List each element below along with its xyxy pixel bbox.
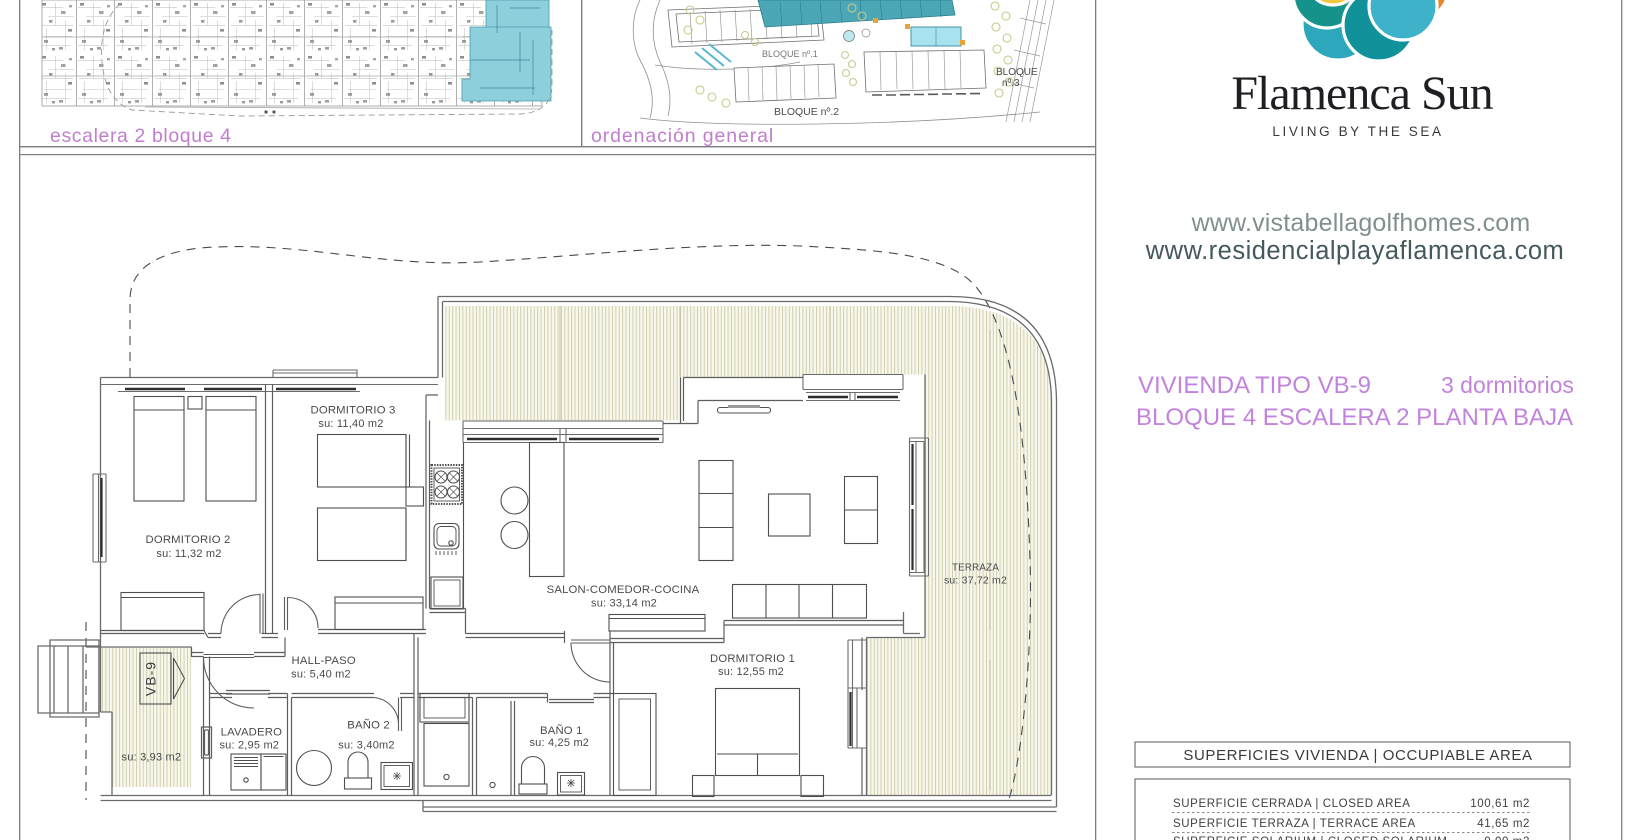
svg-text:SUPERFICIE TERRAZA | TERRA: SUPERFICIE TERRAZA | TERRACE AREA bbox=[1173, 818, 1416, 830]
svg-text:3 dormitorios: 3 dormitorios bbox=[1441, 372, 1574, 398]
svg-text:VIVIENDA TIPO VB-9: VIVIENDA TIPO VB-9 bbox=[1138, 372, 1371, 399]
svg-text:su: 3,93 m2: su: 3,93 m2 bbox=[122, 752, 182, 764]
svg-text:su: 4,25 m2: su: 4,25 m2 bbox=[529, 737, 589, 749]
svg-text:su: 3,40m2: su: 3,40m2 bbox=[338, 740, 394, 752]
svg-text:DORMITORIO 3: DORMITORIO 3 bbox=[310, 405, 395, 417]
svg-text:DORMITORIO 1: DORMITORIO 1 bbox=[710, 653, 795, 665]
svg-text:su: 37,72 m2: su: 37,72 m2 bbox=[944, 575, 1007, 587]
svg-text:BLOQUE: BLOQUE bbox=[996, 67, 1038, 78]
svg-text:www.residencialplayaflamenca.c: www.residencialplayaflamenca.com bbox=[1145, 237, 1565, 265]
svg-text:BLOQUE nº.1: BLOQUE nº.1 bbox=[762, 49, 818, 59]
svg-text:VB-9: VB-9 bbox=[143, 661, 159, 696]
svg-text:0,00 m2: 0,00 m2 bbox=[1484, 836, 1530, 840]
svg-text:HALL-PASO: HALL-PASO bbox=[292, 655, 356, 667]
svg-text:su: 11,40 m2: su: 11,40 m2 bbox=[318, 418, 383, 430]
svg-text:SUPERFICIE CERRADA | CLOSED: SUPERFICIE CERRADA | CLOSED AREA bbox=[1173, 798, 1411, 810]
svg-text:SUPERFICIES VIVIENDA | OCCUPIA: SUPERFICIES VIVIENDA | OCCUPIABLE AREA bbox=[1183, 747, 1532, 764]
svg-text:Flamenca Sun: Flamenca Sun bbox=[1231, 67, 1493, 120]
svg-text:su: 33,14 m2: su: 33,14 m2 bbox=[591, 598, 657, 610]
svg-text:SUPERFICIE SOLARIUM | CLOSED: SUPERFICIE SOLARIUM | CLOSED SOLARIUM bbox=[1173, 836, 1447, 840]
svg-text:su: 5,40 m2: su: 5,40 m2 bbox=[291, 669, 351, 681]
svg-text:LAVADERO: LAVADERO bbox=[221, 727, 282, 739]
svg-text:su: 12,55 m2: su: 12,55 m2 bbox=[718, 666, 784, 678]
svg-text:www.vistabellagolfhomes.com: www.vistabellagolfhomes.com bbox=[1191, 209, 1531, 237]
svg-text:su: 2,95 m2: su: 2,95 m2 bbox=[219, 740, 279, 752]
svg-text:DORMITORIO 2: DORMITORIO 2 bbox=[145, 534, 230, 546]
svg-text:escalera 2 bloque 4: escalera 2 bloque 4 bbox=[50, 125, 232, 147]
svg-text:LIVING BY THE SEA: LIVING BY THE SEA bbox=[1272, 124, 1443, 139]
svg-text:BAÑO 2: BAÑO 2 bbox=[347, 719, 390, 732]
svg-text:ordenación general: ordenación general bbox=[591, 125, 774, 147]
svg-text:41,65 m2: 41,65 m2 bbox=[1477, 818, 1530, 830]
svg-text:nº.3: nº.3 bbox=[1002, 78, 1020, 89]
svg-text:TERRAZA: TERRAZA bbox=[952, 563, 999, 574]
svg-text:su: 11,32 m2: su: 11,32 m2 bbox=[156, 548, 221, 560]
svg-text:BAÑO 1: BAÑO 1 bbox=[540, 724, 583, 737]
svg-text:100,61 m2: 100,61 m2 bbox=[1470, 798, 1530, 810]
svg-text:SALON-COMEDOR-COCINA: SALON-COMEDOR-COCINA bbox=[547, 584, 700, 596]
svg-text:BLOQUE nº.2: BLOQUE nº.2 bbox=[774, 106, 839, 118]
svg-text:BLOQUE 4 ESCALERA 2 PLANTA: BLOQUE 4 ESCALERA 2 PLANTA BAJA bbox=[1136, 404, 1573, 431]
